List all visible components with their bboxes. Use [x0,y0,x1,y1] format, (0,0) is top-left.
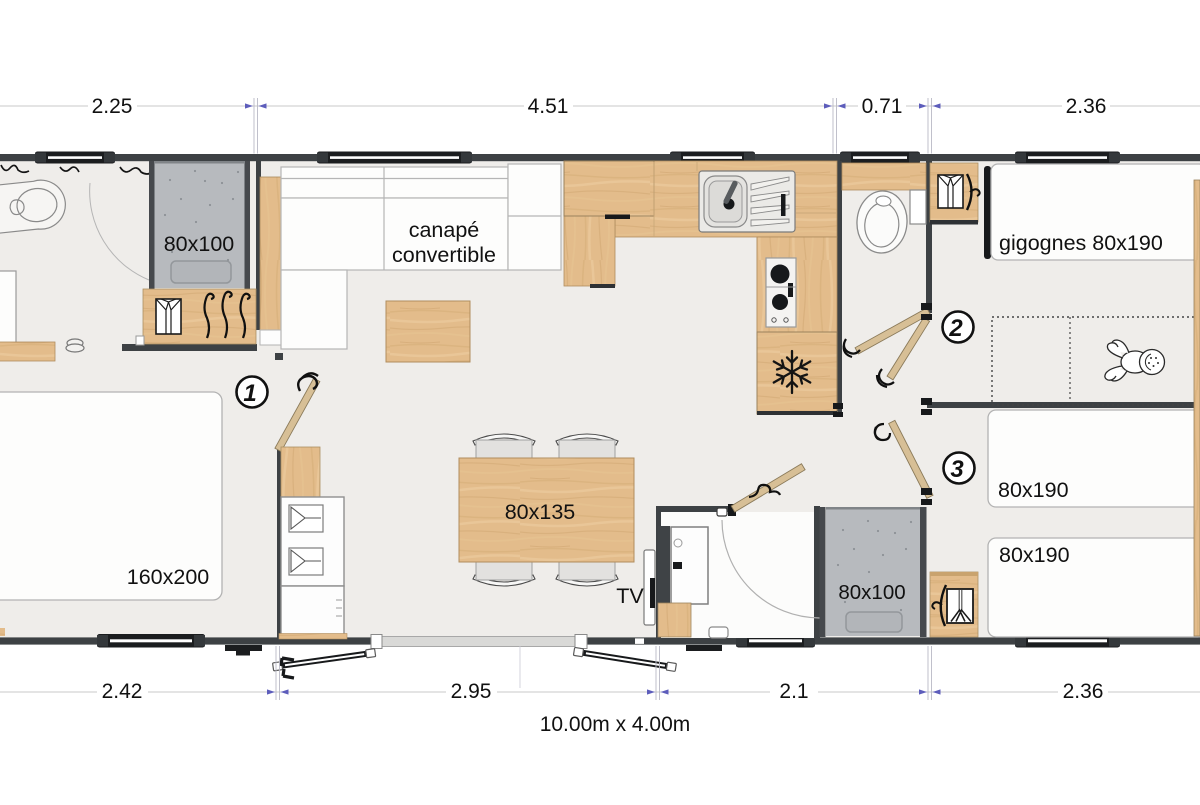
svg-text:80x100: 80x100 [838,581,905,604]
svg-text:1: 1 [243,380,256,407]
svg-text:80x135: 80x135 [505,500,576,524]
svg-text:160x200: 160x200 [127,565,210,589]
svg-text:gigognes 80x190: gigognes 80x190 [999,231,1163,255]
svg-text:2.36: 2.36 [1066,95,1107,118]
svg-text:80x100: 80x100 [164,232,235,256]
svg-text:4.51: 4.51 [528,95,569,118]
svg-text:2.95: 2.95 [451,680,492,703]
svg-text:TV: TV [616,584,644,608]
svg-text:2: 2 [948,315,963,342]
svg-text:0.71: 0.71 [862,95,903,118]
svg-text:2.42: 2.42 [102,680,143,703]
svg-text:2.1: 2.1 [779,680,808,703]
svg-text:2.36: 2.36 [1063,680,1104,703]
svg-text:80x190: 80x190 [999,543,1070,567]
svg-text:10.00m x 4.00m: 10.00m x 4.00m [540,713,691,736]
svg-text:3: 3 [950,456,964,483]
svg-text:canapé: canapé [409,218,480,242]
svg-text:2.25: 2.25 [92,95,133,118]
svg-text:convertible: convertible [392,243,496,267]
svg-text:80x190: 80x190 [998,478,1069,502]
